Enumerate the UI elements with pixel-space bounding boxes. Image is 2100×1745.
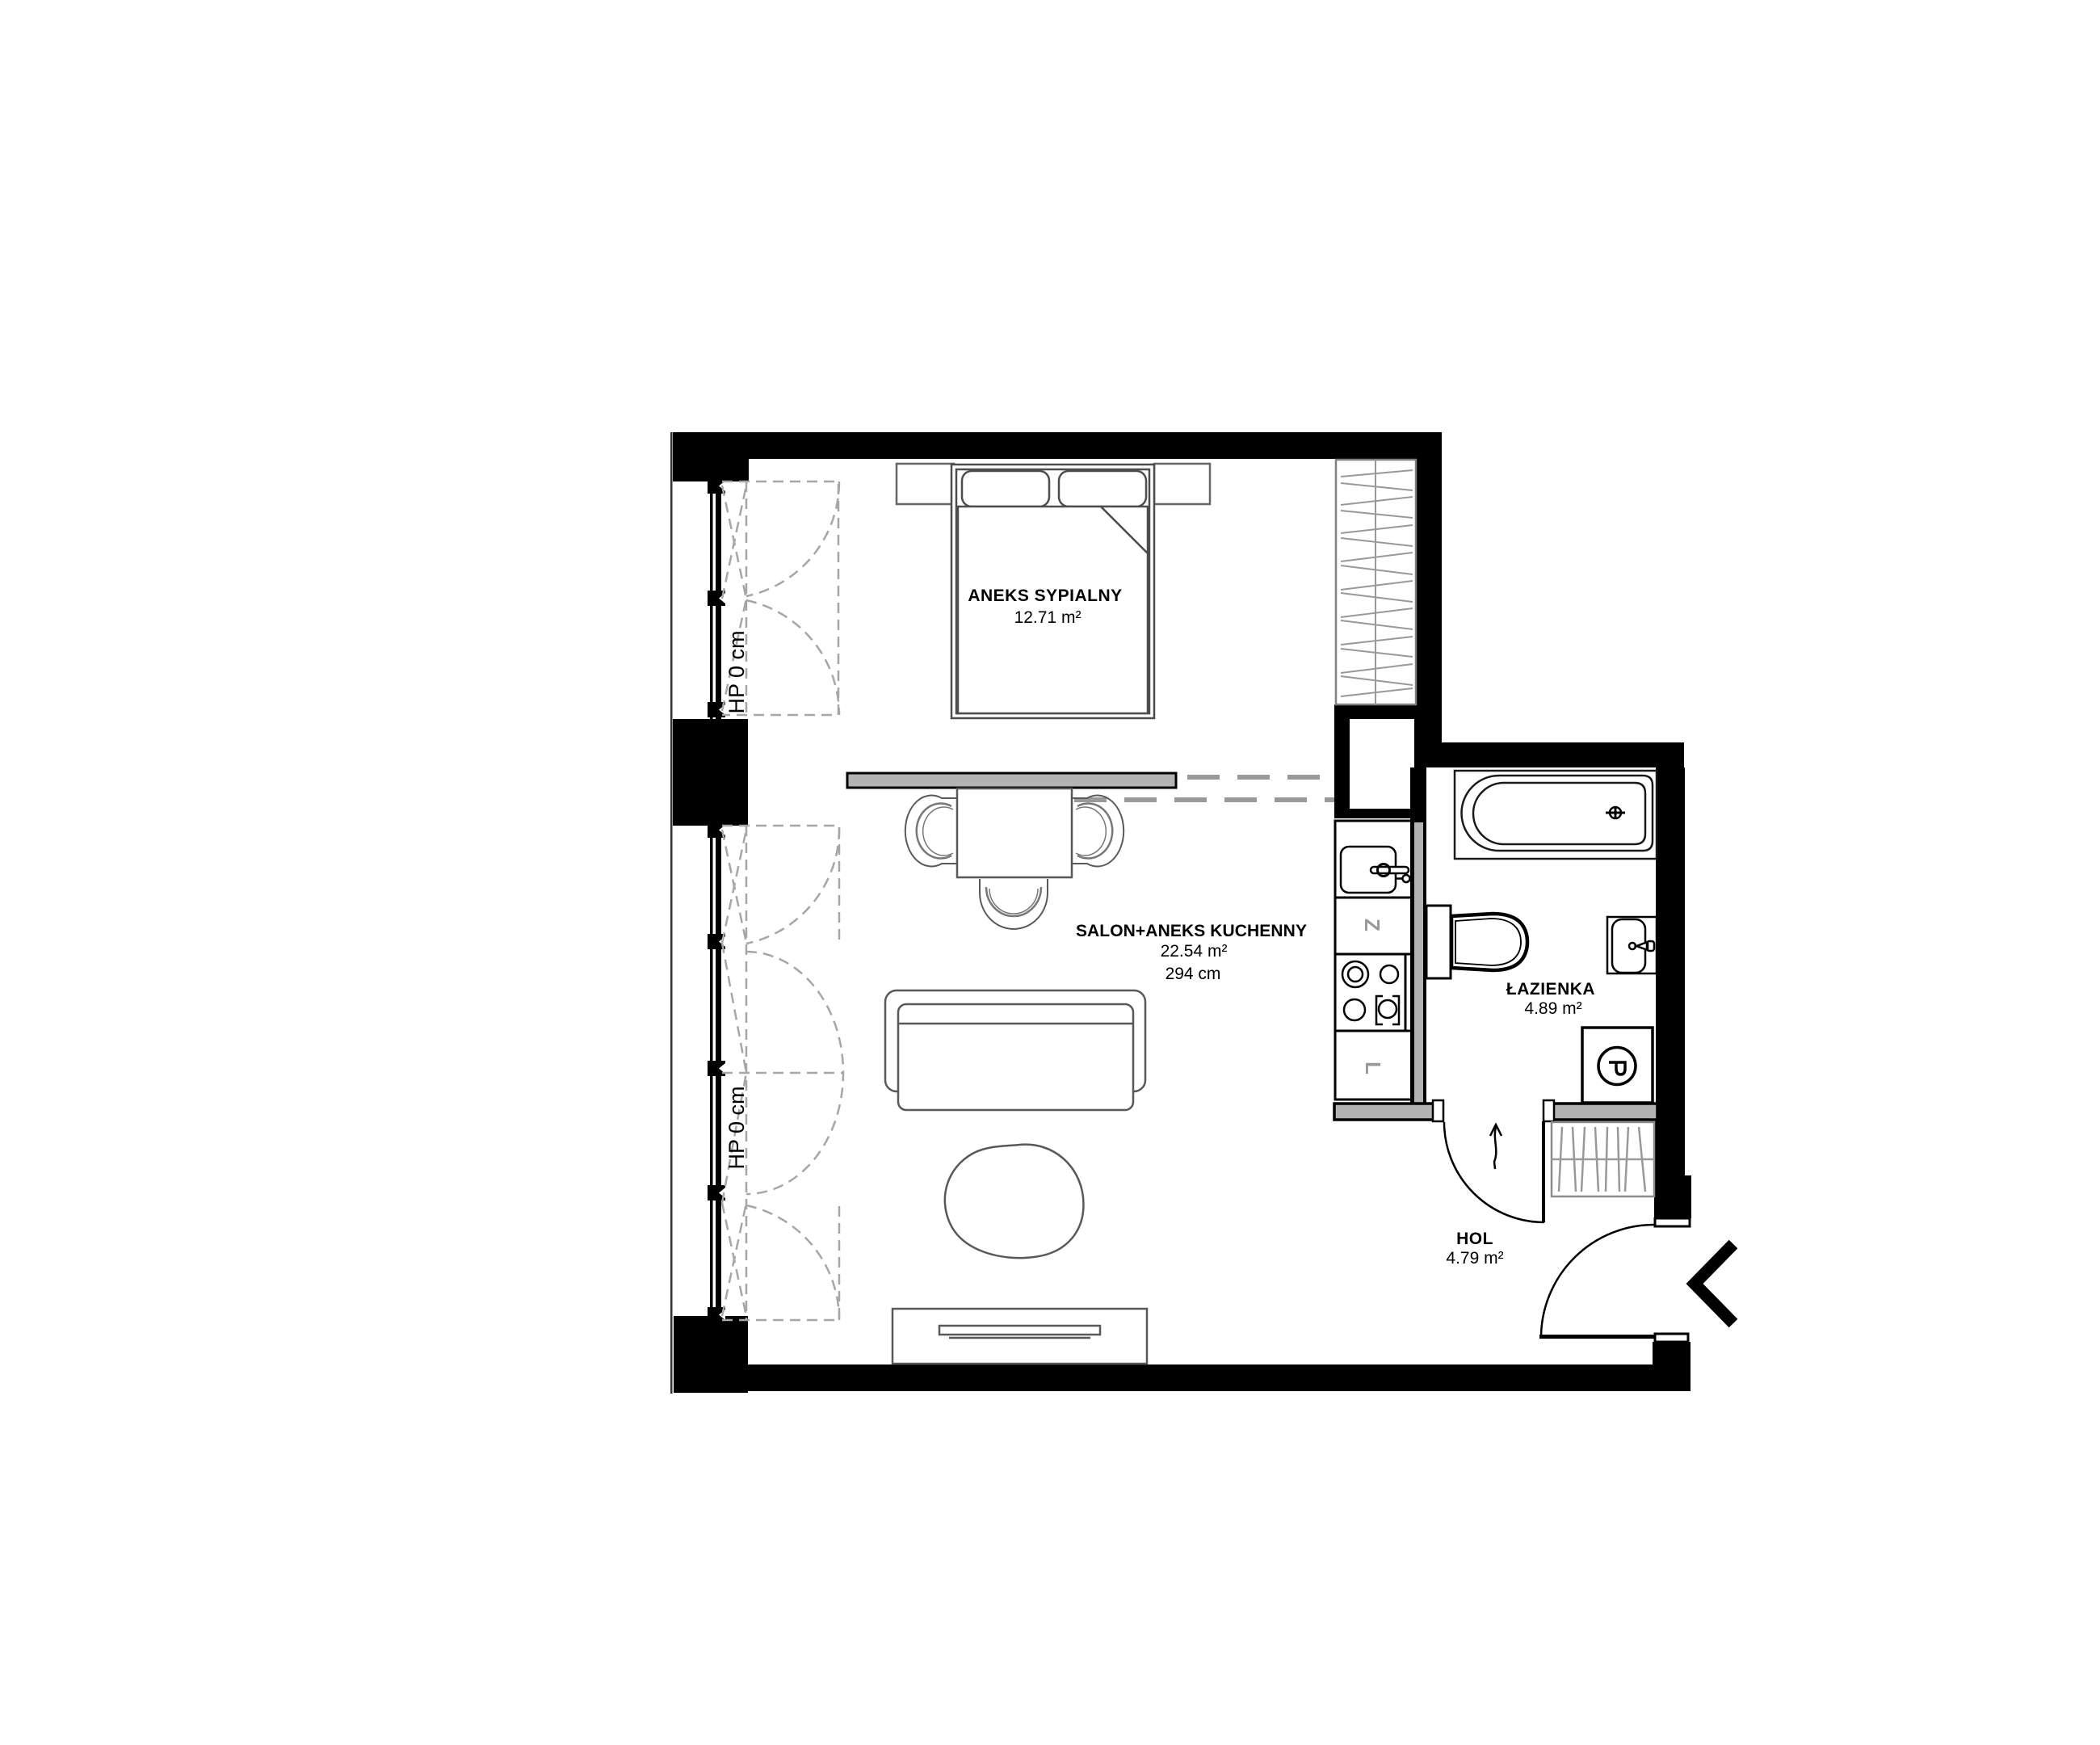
svg-text:Z: Z: [1360, 919, 1384, 931]
svg-text:294 cm: 294 cm: [1165, 965, 1221, 983]
svg-text:ŁAZIENKA: ŁAZIENKA: [1506, 980, 1595, 999]
svg-text:12.71 m²: 12.71 m²: [1014, 608, 1081, 627]
svg-text:L: L: [1361, 1062, 1385, 1074]
svg-text:HOL: HOL: [1456, 1230, 1493, 1248]
svg-text:4.79 m²: 4.79 m²: [1446, 1249, 1503, 1268]
svg-text:HP 0 cm: HP 0 cm: [724, 630, 749, 713]
svg-text:SALON+ANEKS KUCHENNY: SALON+ANEKS KUCHENNY: [1076, 922, 1307, 940]
svg-text:HP 0 cm: HP 0 cm: [724, 1086, 749, 1169]
svg-text:22.54 m²: 22.54 m²: [1161, 942, 1228, 961]
svg-text:4.89 m²: 4.89 m²: [1524, 999, 1581, 1018]
svg-text:ANEKS SYPIALNY: ANEKS SYPIALNY: [968, 587, 1122, 605]
